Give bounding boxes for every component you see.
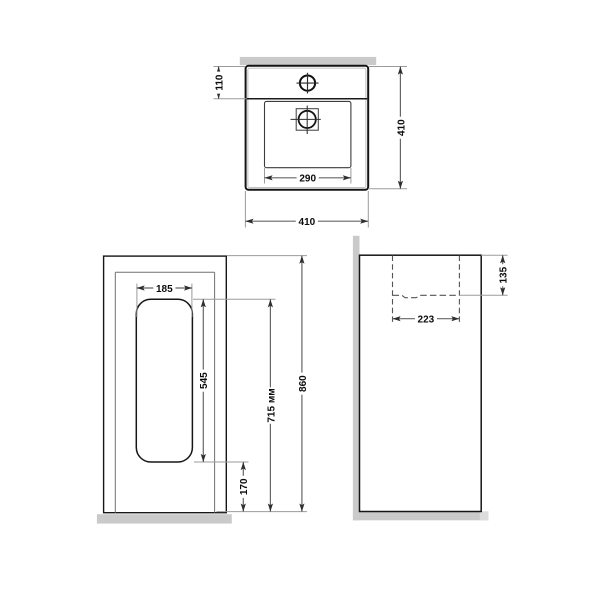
svg-text:715 мм: 715 мм <box>266 388 277 422</box>
svg-text:135: 135 <box>499 266 510 283</box>
svg-text:410: 410 <box>396 119 407 136</box>
svg-text:185: 185 <box>156 284 173 295</box>
svg-text:860: 860 <box>298 375 309 392</box>
svg-text:170: 170 <box>239 478 250 495</box>
svg-text:410: 410 <box>299 217 316 228</box>
svg-text:290: 290 <box>299 174 316 185</box>
svg-text:110: 110 <box>215 74 226 91</box>
svg-text:545: 545 <box>199 372 210 389</box>
svg-text:223: 223 <box>418 315 435 326</box>
